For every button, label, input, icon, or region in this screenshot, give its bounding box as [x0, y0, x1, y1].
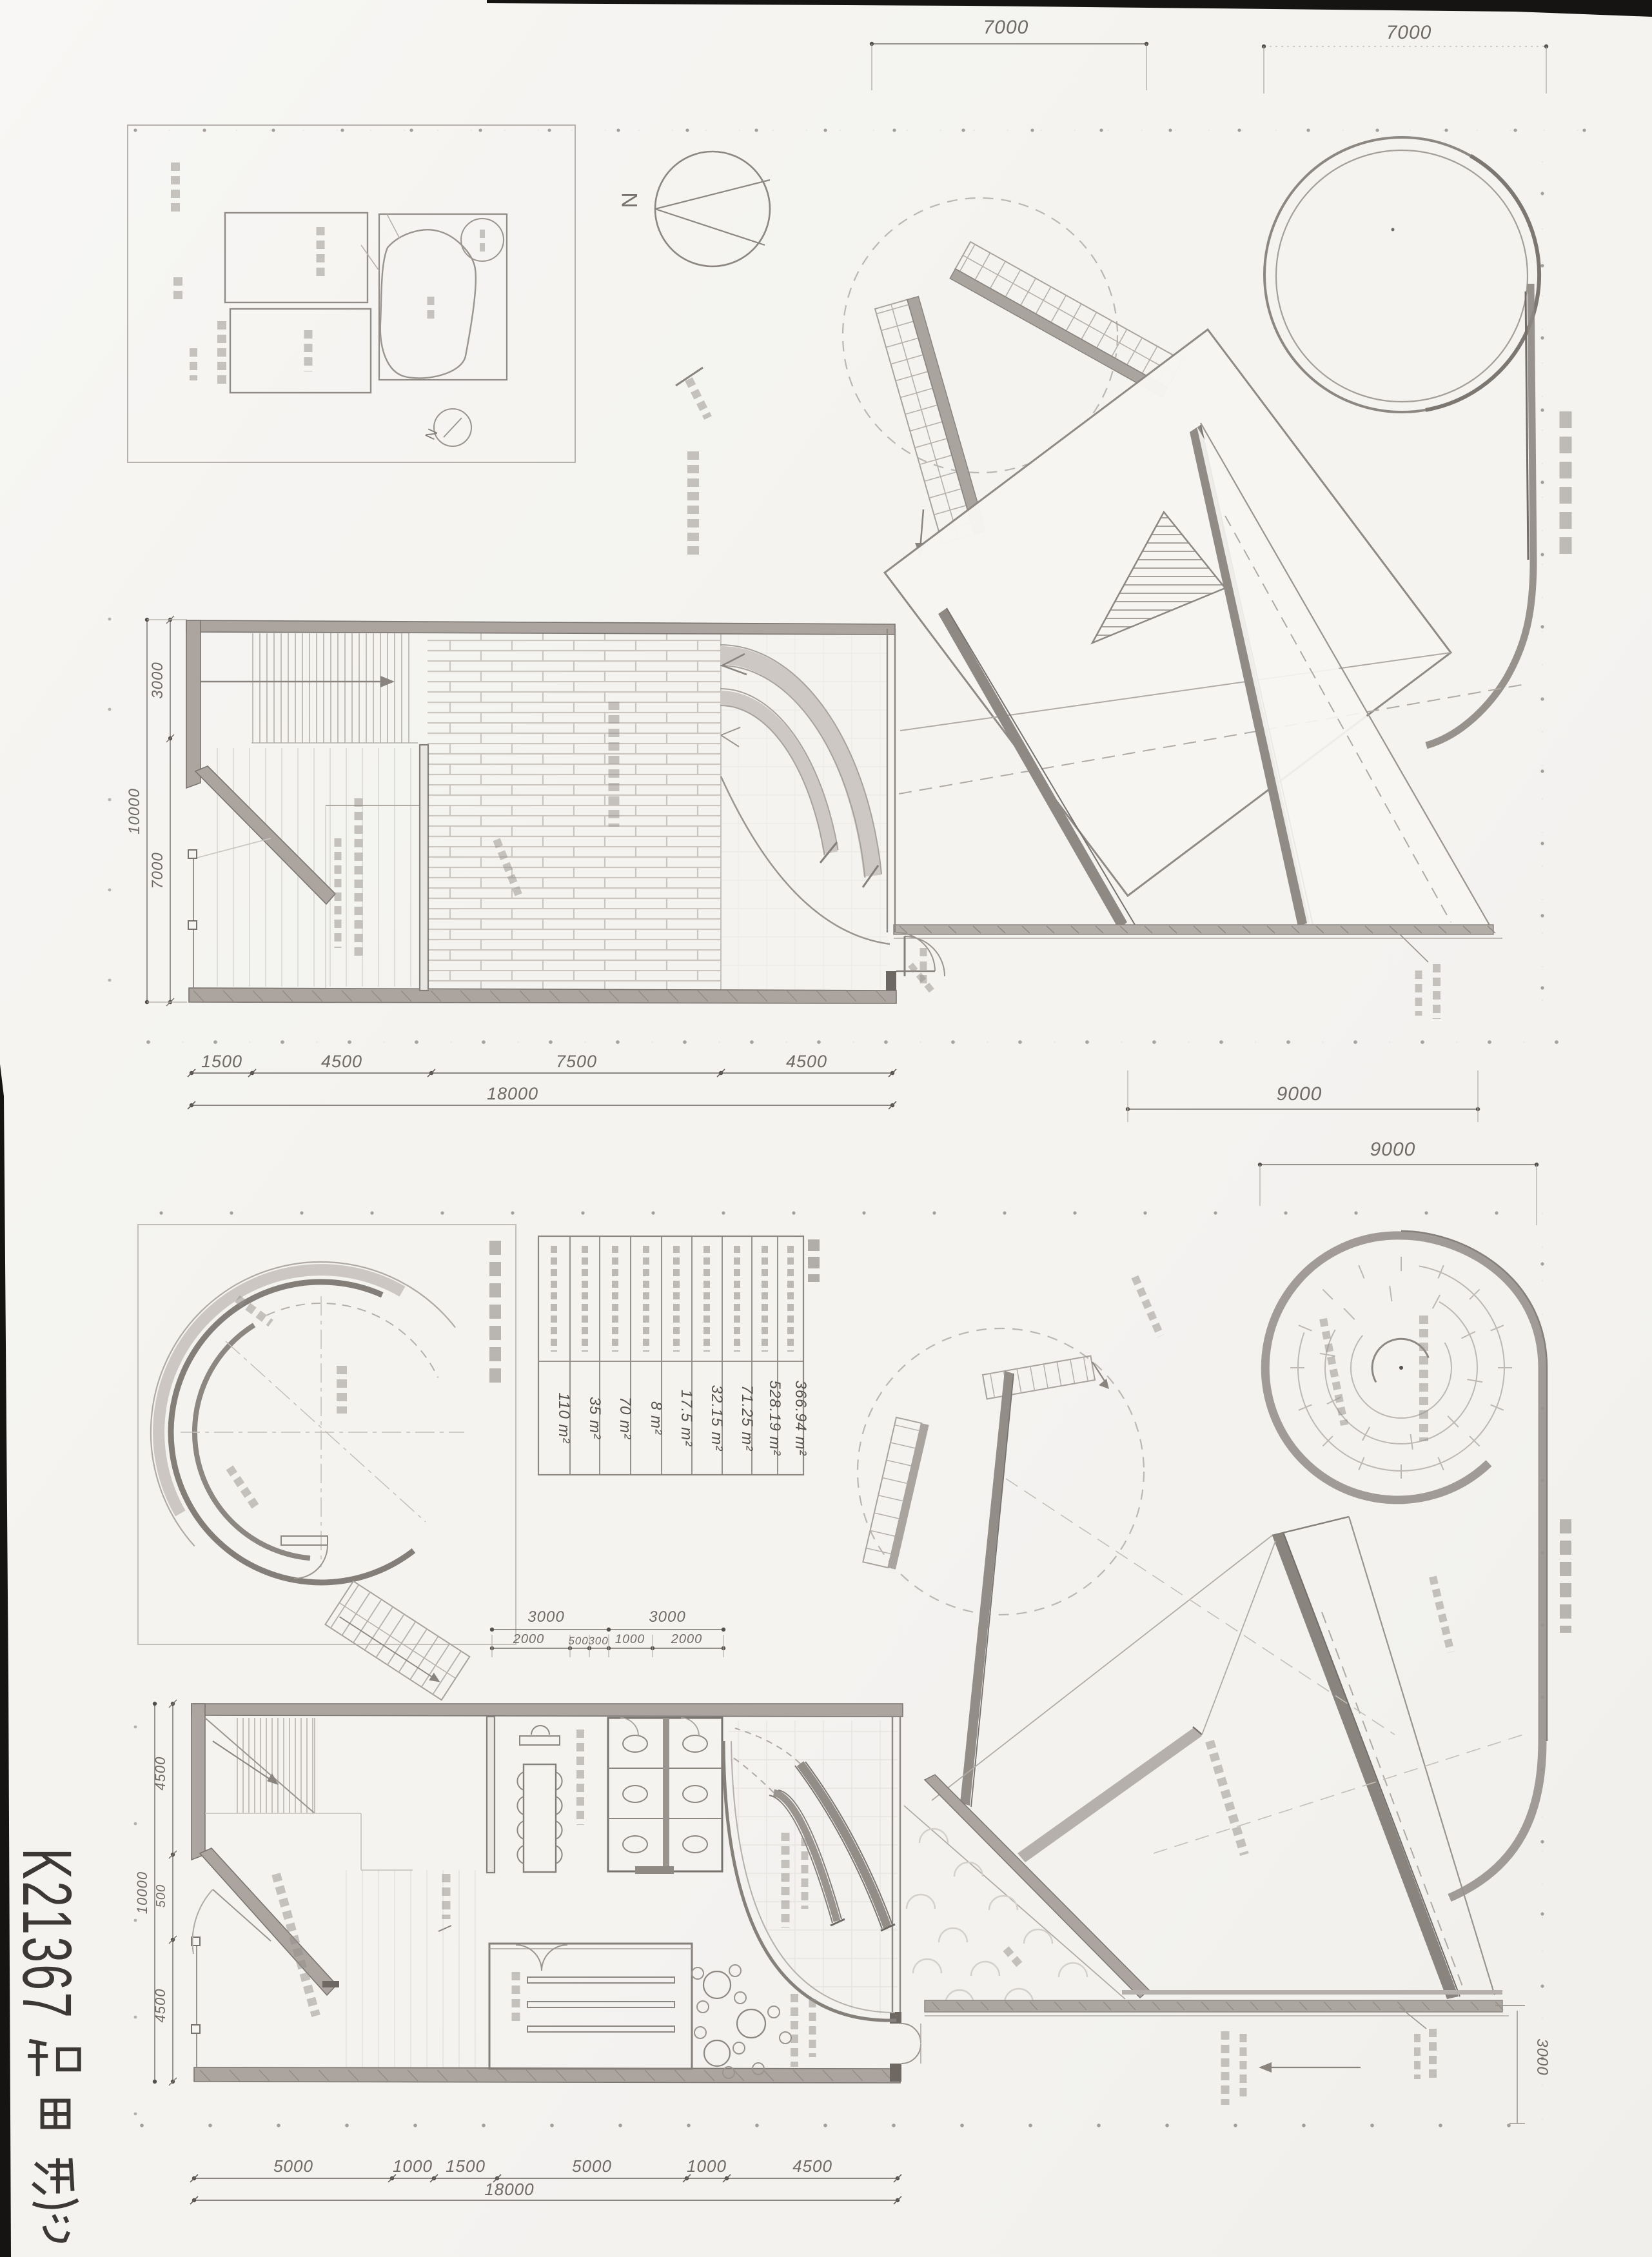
svg-text:9000: 9000: [1370, 1139, 1416, 1160]
svg-text:500: 500: [154, 1884, 168, 1907]
svg-text:528.19 m²: 528.19 m²: [766, 1380, 783, 1455]
svg-text:35 m²: 35 m²: [586, 1397, 604, 1439]
svg-text:10000: 10000: [134, 1871, 150, 1914]
svg-text:4500: 4500: [321, 1052, 362, 1071]
svg-text:3000: 3000: [527, 1608, 564, 1626]
svg-text:7000: 7000: [1386, 22, 1432, 43]
svg-text:17.5 m²: 17.5 m²: [678, 1390, 695, 1446]
svg-text:1000: 1000: [393, 2156, 433, 2176]
svg-text:K21367: K21367: [8, 1848, 85, 2020]
svg-text:70 m²: 70 m²: [616, 1397, 634, 1439]
svg-text:3000: 3000: [149, 662, 166, 698]
svg-text:32.15 m²: 32.15 m²: [708, 1385, 725, 1452]
svg-text:1500: 1500: [201, 1052, 242, 1071]
svg-text:18000: 18000: [487, 1084, 538, 1103]
svg-text:N: N: [618, 192, 642, 208]
svg-text:5000: 5000: [572, 2156, 612, 2176]
svg-text:366.94 m²: 366.94 m²: [792, 1380, 809, 1455]
svg-text:71.25 m²: 71.25 m²: [738, 1385, 756, 1452]
svg-text:4500: 4500: [786, 1052, 827, 1071]
svg-text:9000: 9000: [1277, 1083, 1323, 1105]
svg-text:2000: 2000: [513, 1632, 545, 1646]
svg-text:1500: 1500: [446, 2156, 486, 2176]
svg-text:3000: 3000: [649, 1608, 685, 1626]
svg-text:3000: 3000: [1533, 2038, 1551, 2075]
svg-text:5000: 5000: [273, 2156, 313, 2176]
svg-text:300: 300: [588, 1635, 608, 1647]
svg-text:10000: 10000: [126, 788, 143, 834]
svg-text:8 m²: 8 m²: [647, 1401, 665, 1435]
svg-text:4500: 4500: [792, 2156, 832, 2176]
svg-text:1000: 1000: [687, 2156, 727, 2176]
svg-text:2000: 2000: [671, 1632, 703, 1646]
svg-text:1000: 1000: [615, 1633, 645, 1646]
svg-text:500: 500: [568, 1635, 588, 1647]
svg-text:110 m²: 110 m²: [555, 1393, 573, 1444]
svg-text:7000: 7000: [983, 17, 1029, 38]
svg-text:7500: 7500: [556, 1052, 597, 1071]
svg-text:18000: 18000: [484, 2180, 534, 2199]
svg-text:7000: 7000: [149, 852, 166, 889]
